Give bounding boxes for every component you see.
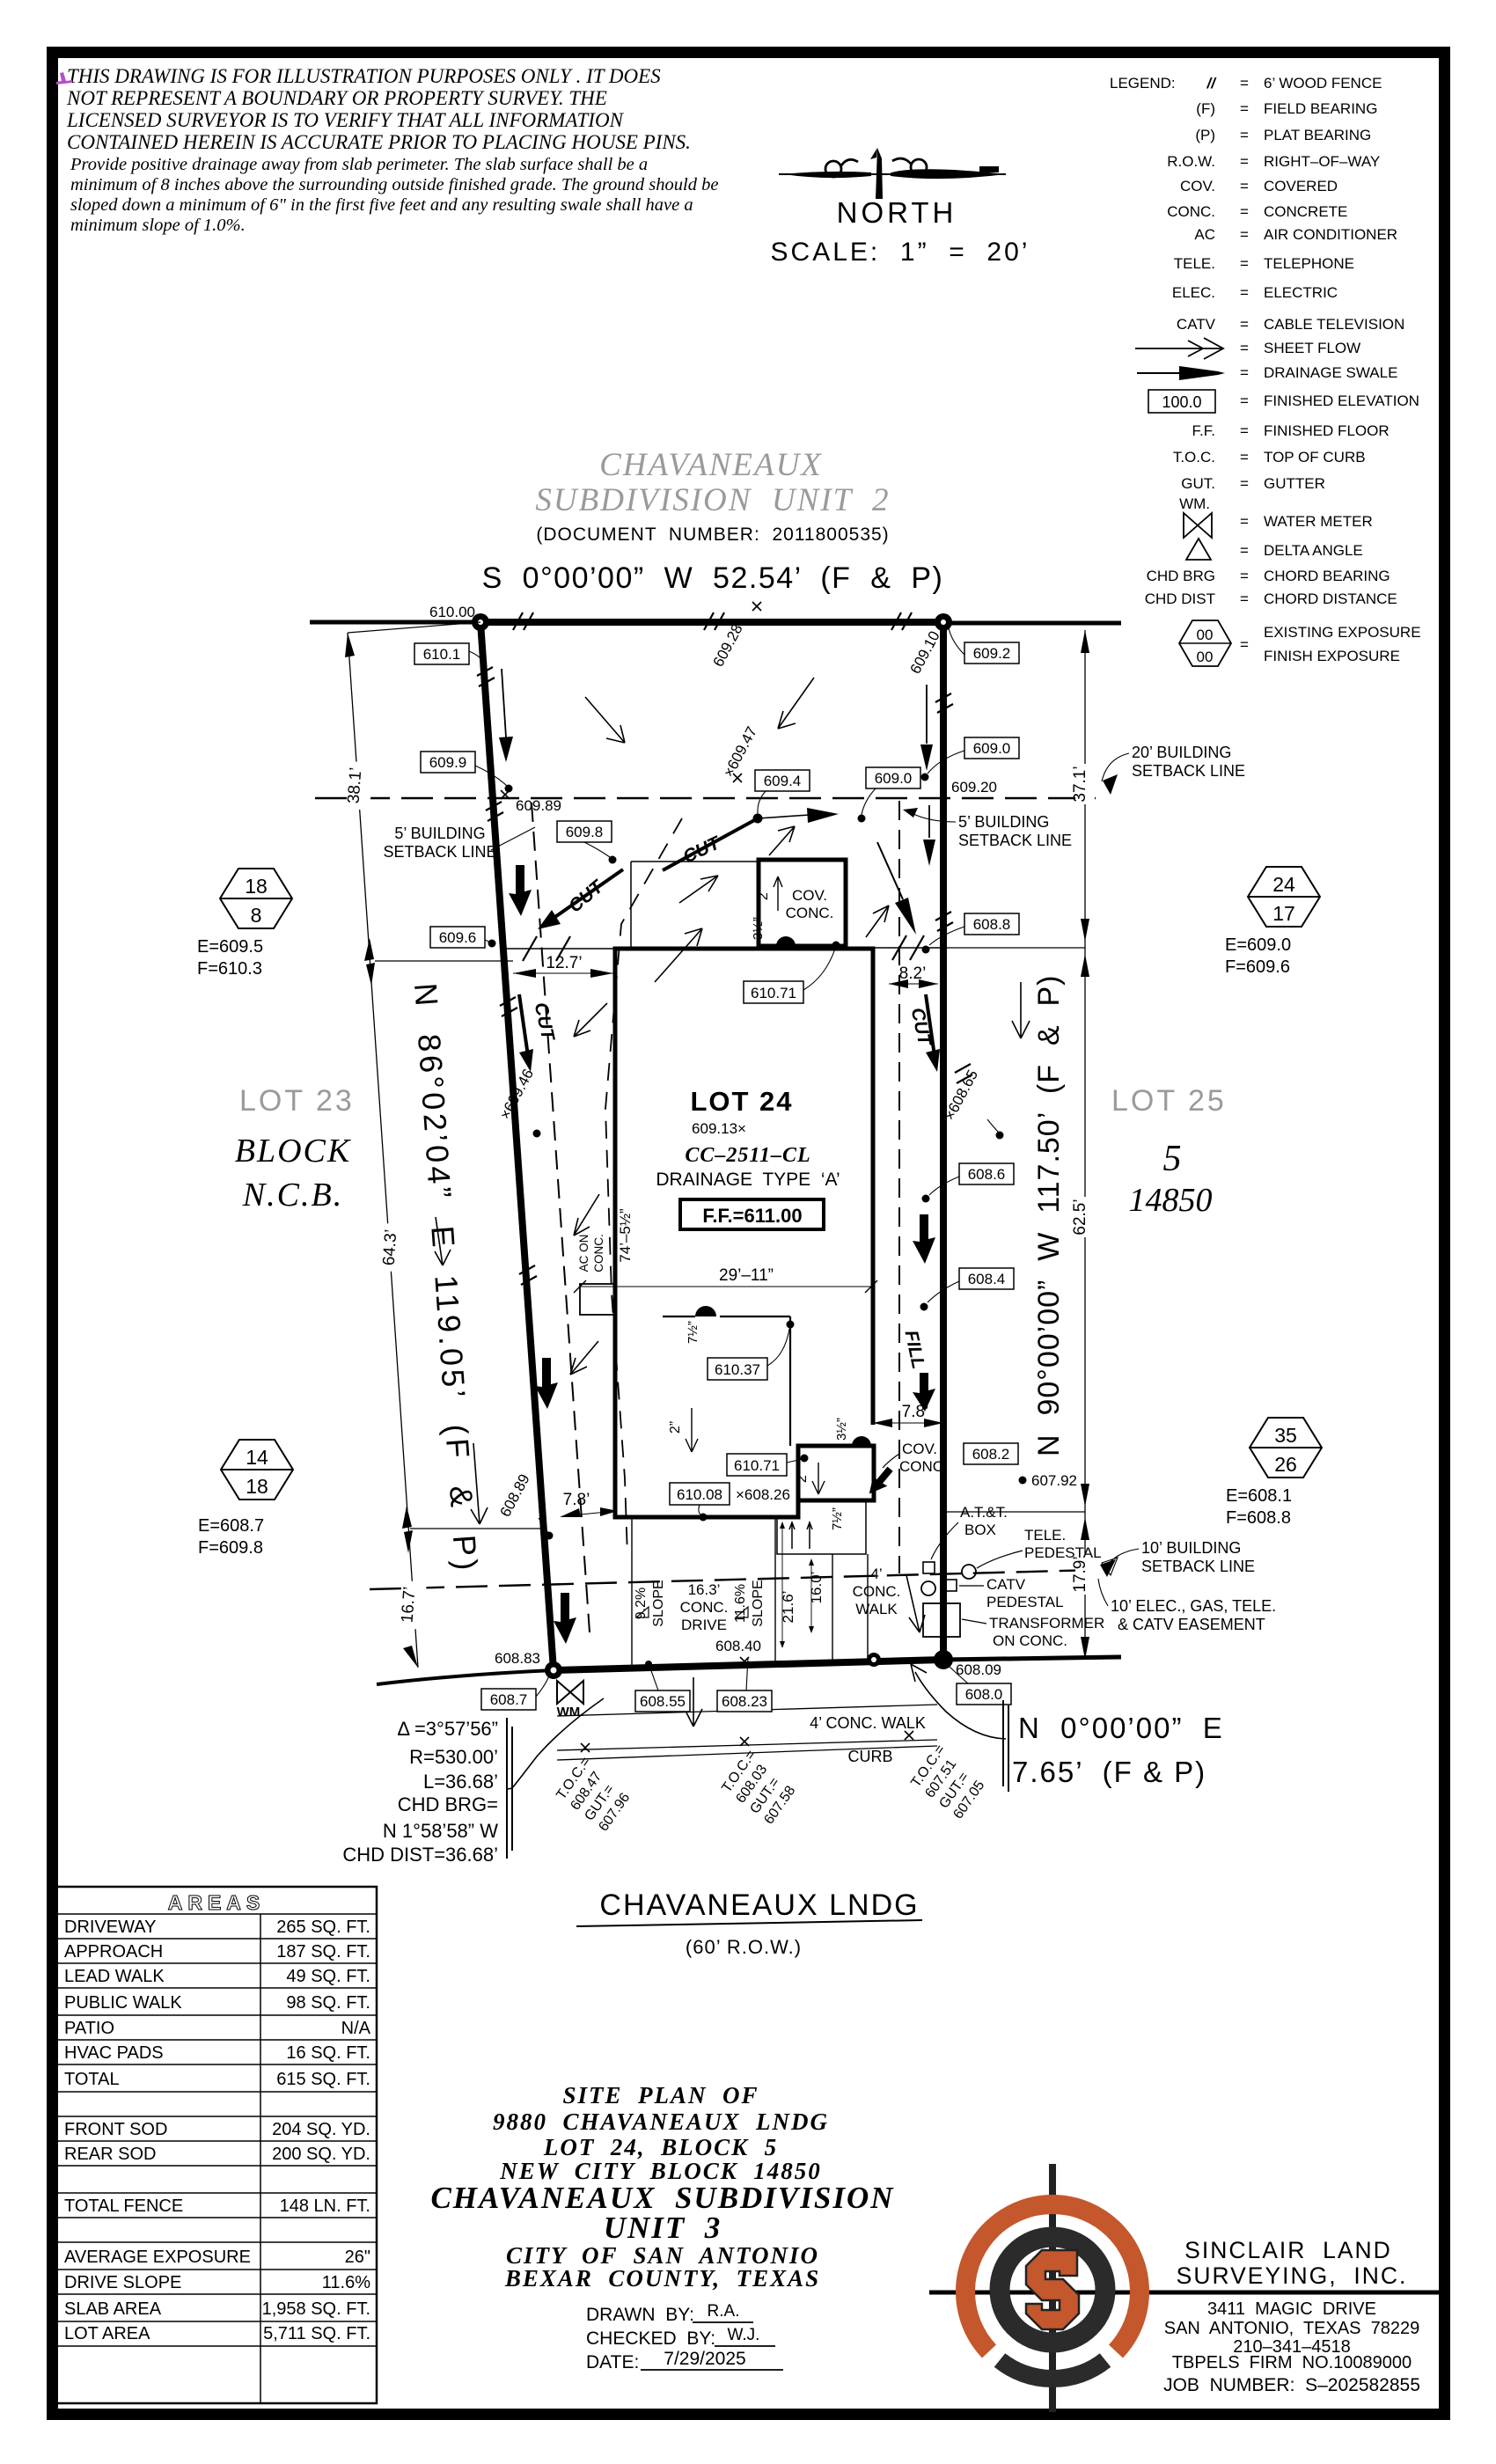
svg-text:148 LN. FT.: 148 LN. FT. <box>280 2196 370 2216</box>
svg-text:F=609.8: F=609.8 <box>198 1538 263 1558</box>
svg-text:4’ CONC. WALK: 4’ CONC. WALK <box>810 1714 926 1732</box>
svg-text:LEGEND:: LEGEND: <box>1110 75 1176 92</box>
svg-text:AIR CONDITIONER: AIR CONDITIONER <box>1264 226 1397 243</box>
svg-text:Δ =3°57’56”: Δ =3°57’56” <box>397 1718 498 1740</box>
svg-text:CHAVANEAUX: CHAVANEAUX <box>599 447 823 483</box>
svg-text:BOX: BOX <box>964 1522 996 1538</box>
svg-text:609.0: 609.0 <box>973 740 1011 757</box>
svg-text:L=36.68’: L=36.68’ <box>423 1771 498 1793</box>
svg-text:SLOPE: SLOPE <box>651 1580 666 1626</box>
svg-text:TELEPHONE: TELEPHONE <box>1264 255 1354 272</box>
svg-text:8.2’: 8.2’ <box>899 964 927 983</box>
svg-text:8: 8 <box>251 904 262 927</box>
svg-text:DATE:: DATE: <box>586 2352 639 2372</box>
svg-text:=: = <box>1240 513 1249 530</box>
svg-text:SLAB AREA: SLAB AREA <box>64 2299 162 2319</box>
svg-text:7/29/2025: 7/29/2025 <box>664 2349 745 2369</box>
svg-text:AREAS: AREAS <box>168 1891 266 1914</box>
svg-text:SETBACK LINE: SETBACK LINE <box>1141 1558 1255 1575</box>
svg-text:SINCLAIR LAND: SINCLAIR LAND <box>1184 2237 1392 2263</box>
svg-text:35: 35 <box>1274 1424 1297 1447</box>
svg-text:17.9’: 17.9’ <box>1071 1556 1089 1592</box>
svg-text:609.0: 609.0 <box>875 770 913 787</box>
svg-text:TOTAL FENCE: TOTAL FENCE <box>64 2196 183 2216</box>
svg-text:(60’ R.O.W.): (60’ R.O.W.) <box>686 1936 802 1958</box>
svg-text:=: = <box>1240 284 1249 301</box>
svg-text:100.0: 100.0 <box>1162 393 1201 411</box>
svg-text:FINISH EXPOSURE: FINISH EXPOSURE <box>1264 648 1400 664</box>
svg-text:LOT 23: LOT 23 <box>239 1084 355 1118</box>
svg-text:N/A: N/A <box>341 2019 371 2038</box>
svg-text:LOT 24, BLOCK 5: LOT 24, BLOCK 5 <box>543 2134 778 2160</box>
svg-text:26: 26 <box>1274 1453 1297 1476</box>
svg-text:CHORD DISTANCE: CHORD DISTANCE <box>1264 590 1397 607</box>
svg-text:00: 00 <box>1197 627 1214 643</box>
svg-text:SURVEYING, INC.: SURVEYING, INC. <box>1177 2262 1408 2289</box>
svg-text:608.4: 608.4 <box>968 1271 1006 1287</box>
svg-text:R=530.00’: R=530.00’ <box>409 1746 498 1768</box>
svg-text:=: = <box>1240 203 1249 220</box>
svg-text:18: 18 <box>246 1475 268 1498</box>
svg-text:F=608.8: F=608.8 <box>1226 1508 1291 1528</box>
svg-text:SUBDIVISION UNIT 2: SUBDIVISION UNIT 2 <box>535 482 890 518</box>
svg-text:CHD BRG: CHD BRG <box>1147 568 1215 584</box>
svg-text:SCALE: 1” = 20’: SCALE: 1” = 20’ <box>771 238 1030 267</box>
svg-text:SAN ANTONIO, TEXAS 78229: SAN ANTONIO, TEXAS 78229 <box>1164 2319 1420 2338</box>
svg-text:609.89: 609.89 <box>516 797 561 814</box>
svg-text:7.8’: 7.8’ <box>563 1491 590 1509</box>
svg-text:N 0°00’00” E: N 0°00’00” E <box>1018 1712 1224 1744</box>
svg-text:24: 24 <box>1272 873 1295 896</box>
svg-text:615 SQ. FT.: 615 SQ. FT. <box>276 2070 370 2089</box>
svg-text:R.A.: R.A. <box>708 2302 740 2321</box>
svg-text:APPROACH: APPROACH <box>64 1942 163 1962</box>
svg-text:607.92: 607.92 <box>1031 1472 1077 1489</box>
svg-text:6’ WOOD FENCE: 6’ WOOD FENCE <box>1264 75 1382 92</box>
svg-text:DRIVE SLOPE: DRIVE SLOPE <box>64 2273 181 2292</box>
svg-text:LOT 24: LOT 24 <box>690 1086 793 1117</box>
svg-text:2”: 2” <box>756 888 771 900</box>
svg-text:AC ON: AC ON <box>577 1235 590 1272</box>
svg-text:608.0: 608.0 <box>965 1686 1003 1703</box>
svg-text:5,711 SQ. FT.: 5,711 SQ. FT. <box>263 2324 370 2343</box>
svg-text:BLOCK: BLOCK <box>235 1133 351 1170</box>
svg-text:CHD DIST: CHD DIST <box>1145 590 1215 607</box>
svg-text:PATIO: PATIO <box>64 2019 114 2038</box>
svg-text:609.20: 609.20 <box>951 779 997 796</box>
svg-text:=: = <box>1240 316 1249 333</box>
svg-text:SHEET FLOW: SHEET FLOW <box>1264 340 1360 356</box>
svg-text:=: = <box>1240 100 1249 117</box>
svg-text:SETBACK LINE: SETBACK LINE <box>383 843 496 861</box>
svg-text:3½”: 3½” <box>751 917 766 940</box>
svg-text:THIS DRAWING IS FOR ILLUSTRATI: THIS DRAWING IS FOR ILLUSTRATION PURPOSE… <box>67 65 661 87</box>
svg-text:610.71: 610.71 <box>751 985 796 1001</box>
svg-text:CHD DIST=36.68’: CHD DIST=36.68’ <box>342 1844 498 1866</box>
svg-text:00: 00 <box>1197 649 1214 665</box>
svg-text:SETBACK LINE: SETBACK LINE <box>1132 762 1245 780</box>
svg-text:187 SQ. FT.: 187 SQ. FT. <box>276 1942 370 1962</box>
svg-text:CHORD BEARING: CHORD BEARING <box>1264 568 1390 584</box>
svg-text:98 SQ. FT.: 98 SQ. FT. <box>286 1993 370 2013</box>
svg-text:610.1: 610.1 <box>423 646 461 663</box>
svg-text:610.37: 610.37 <box>715 1361 760 1378</box>
svg-text:TOP OF CURB: TOP OF CURB <box>1264 449 1366 466</box>
svg-text:AC: AC <box>1194 226 1215 243</box>
svg-text:17: 17 <box>1272 902 1295 925</box>
svg-text:3½”: 3½” <box>834 1418 849 1441</box>
svg-text:F.F.: F.F. <box>1192 422 1215 439</box>
svg-text:609.6: 609.6 <box>439 929 477 946</box>
svg-text:=: = <box>1240 226 1249 243</box>
svg-text:608.7: 608.7 <box>490 1691 528 1708</box>
svg-text:74’–5½”: 74’–5½” <box>617 1208 634 1263</box>
svg-text:=: = <box>1240 475 1249 492</box>
svg-text:N 90°00’00” W 117.50’ (F: N 90°00’00” W 117.50’ (F & P) <box>1032 975 1066 1456</box>
svg-text:609.9: 609.9 <box>429 754 467 771</box>
svg-text:Provide positive drainage away: Provide positive drainage away from slab… <box>70 155 648 174</box>
svg-text:608.23: 608.23 <box>722 1693 767 1710</box>
svg-text:7½”: 7½” <box>686 1321 700 1344</box>
svg-text:12.7’: 12.7’ <box>546 954 582 972</box>
svg-text:F.F.=611.00: F.F.=611.00 <box>702 1205 802 1227</box>
svg-text:609.2: 609.2 <box>973 645 1011 662</box>
svg-text:N.C.B.: N.C.B. <box>242 1177 343 1214</box>
svg-text:ELECTRIC: ELECTRIC <box>1264 284 1338 301</box>
svg-text:FINISHED ELEVATION: FINISHED ELEVATION <box>1264 392 1419 409</box>
svg-text:CATV: CATV <box>1177 316 1216 333</box>
svg-text:608.40: 608.40 <box>715 1638 761 1654</box>
svg-text:5’ BUILDING: 5’ BUILDING <box>394 825 485 842</box>
svg-text:LOT 25: LOT 25 <box>1111 1084 1227 1118</box>
svg-text:=: = <box>1240 422 1249 439</box>
svg-text:=: = <box>1240 364 1249 381</box>
svg-text:4’: 4’ <box>870 1566 882 1582</box>
svg-text:DELTA ANGLE: DELTA ANGLE <box>1264 542 1363 559</box>
svg-text:TELE.: TELE. <box>1174 255 1215 272</box>
svg-text:EXISTING EXPOSURE: EXISTING EXPOSURE <box>1264 624 1421 641</box>
svg-text:=: = <box>1240 542 1249 559</box>
svg-text:(P): (P) <box>1195 127 1215 143</box>
svg-text:37.1’: 37.1’ <box>1071 766 1089 802</box>
svg-text:COVERED: COVERED <box>1264 178 1338 194</box>
svg-text:204 SQ. YD.: 204 SQ. YD. <box>272 2120 370 2139</box>
svg-text:WM.: WM. <box>557 1705 584 1720</box>
svg-text:TRANSFORMER: TRANSFORMER <box>989 1615 1104 1632</box>
svg-text:F=610.3: F=610.3 <box>197 959 262 979</box>
svg-text:E=608.7: E=608.7 <box>198 1516 264 1536</box>
svg-text:9.2%: 9.2% <box>634 1588 649 1619</box>
svg-text:16 SQ. FT.: 16 SQ. FT. <box>286 2043 370 2063</box>
svg-text:E=609.5: E=609.5 <box>197 937 263 957</box>
svg-text:S 0°00’00” W 52.54’ (F &: S 0°00’00” W 52.54’ (F & P) <box>482 561 944 595</box>
svg-text:10’ ELEC., GAS, TELE.: 10’ ELEC., GAS, TELE. <box>1111 1597 1276 1615</box>
svg-text:LICENSED SURVEYOR IS TO VERIFY: LICENSED SURVEYOR IS TO VERIFY THAT ALL … <box>66 109 625 131</box>
svg-text:W.J.: W.J. <box>728 2326 760 2344</box>
svg-text:COV.: COV. <box>902 1441 937 1457</box>
svg-text:2”: 2” <box>795 1470 810 1483</box>
svg-text:HVAC PADS: HVAC PADS <box>64 2043 164 2063</box>
svg-text:(F): (F) <box>1196 100 1215 117</box>
svg-text:=: = <box>1240 255 1249 272</box>
svg-text:CONC.: CONC. <box>899 1458 948 1475</box>
svg-text:UNIT 3: UNIT 3 <box>604 2211 722 2245</box>
svg-text:A.T.&T.: A.T.&T. <box>960 1504 1008 1521</box>
svg-text:GUTTER: GUTTER <box>1264 475 1325 492</box>
svg-text:608.6: 608.6 <box>968 1166 1006 1183</box>
svg-text:=: = <box>1240 636 1249 653</box>
svg-text:10’ BUILDING: 10’ BUILDING <box>1141 1539 1241 1557</box>
svg-text:COV.: COV. <box>1180 178 1215 194</box>
svg-text:RIGHT–OF–WAY: RIGHT–OF–WAY <box>1264 153 1380 170</box>
svg-text:26": 26" <box>345 2248 370 2267</box>
svg-text:7.65’ (F & P): 7.65’ (F & P) <box>1012 1756 1206 1788</box>
svg-text:16.0’: 16.0’ <box>808 1572 825 1604</box>
svg-text:WM.: WM. <box>1179 495 1210 512</box>
svg-text:CONC.: CONC. <box>786 905 834 921</box>
svg-text:SITE PLAN OF: SITE PLAN OF <box>562 2082 759 2108</box>
svg-text:CC–2511–CL: CC–2511–CL <box>685 1144 810 1167</box>
svg-text:E=608.1: E=608.1 <box>1226 1486 1292 1506</box>
svg-text:PLAT BEARING: PLAT BEARING <box>1264 127 1371 143</box>
svg-text:18: 18 <box>245 875 268 898</box>
svg-text:7½”: 7½” <box>830 1507 845 1530</box>
svg-text:TELE.: TELE. <box>1024 1527 1066 1544</box>
svg-text:CONC.: CONC. <box>853 1583 901 1600</box>
svg-text:608.2: 608.2 <box>972 1446 1010 1463</box>
svg-text:62.5’: 62.5’ <box>1071 1199 1089 1235</box>
svg-text:14850: 14850 <box>1129 1182 1213 1219</box>
svg-text:JOB NUMBER: S–202582855: JOB NUMBER: S–202582855 <box>1163 2375 1420 2395</box>
svg-text:GUT.: GUT. <box>1181 475 1215 492</box>
svg-text:5: 5 <box>1163 1139 1182 1179</box>
svg-text:PEDESTAL: PEDESTAL <box>1024 1544 1102 1561</box>
svg-text:16.7’: 16.7’ <box>399 1586 420 1624</box>
svg-text:PEDESTAL: PEDESTAL <box>986 1594 1064 1610</box>
svg-text:COV.: COV. <box>792 887 827 904</box>
svg-text:FIELD BEARING: FIELD BEARING <box>1264 100 1377 117</box>
svg-text:200 SQ. YD.: 200 SQ. YD. <box>272 2145 370 2164</box>
svg-text:=: = <box>1240 590 1249 607</box>
svg-text:BEXAR COUNTY, TEXAS: BEXAR COUNTY, TEXAS <box>504 2265 820 2292</box>
svg-text:=: = <box>1240 392 1249 409</box>
svg-text:610.71: 610.71 <box>734 1457 780 1474</box>
svg-text:609.13×: 609.13× <box>692 1120 746 1137</box>
svg-text:LOT AREA: LOT AREA <box>64 2324 150 2343</box>
svg-text:=: = <box>1240 153 1249 170</box>
svg-text:WATER METER: WATER METER <box>1264 513 1373 530</box>
svg-text:CATV: CATV <box>986 1576 1026 1593</box>
svg-text:REAR SOD: REAR SOD <box>64 2145 156 2164</box>
svg-text:CHD BRG=: CHD BRG= <box>398 1793 498 1815</box>
svg-text:minimum of 8 inches above the: minimum of 8 inches above the surroundin… <box>70 175 718 194</box>
svg-text:F=609.6: F=609.6 <box>1225 957 1290 977</box>
svg-text:FINISHED FLOOR: FINISHED FLOOR <box>1264 422 1390 439</box>
svg-text:CONCRETE: CONCRETE <box>1264 203 1347 220</box>
svg-text:sloped down a minimum of 6" in: sloped down a minimum of 6" in the first… <box>70 195 693 215</box>
svg-text:=: = <box>1240 75 1249 92</box>
svg-text:609.8: 609.8 <box>566 824 604 840</box>
svg-text:DRIVE: DRIVE <box>681 1617 727 1633</box>
svg-text:PUBLIC WALK: PUBLIC WALK <box>64 1993 182 2013</box>
svg-text:CONTAINED HEREIN IS ACCURATE P: CONTAINED HEREIN IS ACCURATE PRIOR TO PL… <box>67 131 691 153</box>
svg-text:SLOPE: SLOPE <box>751 1580 766 1626</box>
svg-text:DRAINAGE SWALE: DRAINAGE SWALE <box>1264 364 1397 381</box>
svg-text:CHECKED BY:: CHECKED BY: <box>586 2328 715 2349</box>
svg-text:DRAWN BY:: DRAWN BY: <box>586 2305 694 2325</box>
svg-text:=: = <box>1240 178 1249 194</box>
svg-text:=: = <box>1240 127 1249 143</box>
svg-text:CONC.: CONC. <box>680 1599 729 1616</box>
svg-text:DRAINAGE TYPE ‘A’: DRAINAGE TYPE ‘A’ <box>656 1170 840 1190</box>
svg-text:CABLE TELEVISION: CABLE TELEVISION <box>1264 316 1404 333</box>
svg-text:608.8: 608.8 <box>973 916 1011 933</box>
svg-text:265 SQ. FT.: 265 SQ. FT. <box>276 1918 370 1937</box>
svg-text:608.83: 608.83 <box>495 1650 540 1667</box>
svg-text:1,958 SQ. FT.: 1,958 SQ. FT. <box>262 2299 370 2319</box>
svg-text:ON CONC.: ON CONC. <box>993 1632 1067 1649</box>
svg-text:2”: 2” <box>668 1421 683 1434</box>
svg-text:×608.26: ×608.26 <box>736 1486 790 1503</box>
svg-text:E=609.0: E=609.0 <box>1225 935 1291 955</box>
svg-text:3411 MAGIC DRIVE: 3411 MAGIC DRIVE <box>1207 2299 1376 2319</box>
svg-text:WALK: WALK <box>855 1601 898 1617</box>
svg-text:16.3’: 16.3’ <box>688 1581 721 1598</box>
svg-text:=: = <box>1240 568 1249 584</box>
svg-text:(DOCUMENT NUMBER: 2011800535: (DOCUMENT NUMBER: 2011800535) <box>536 524 889 545</box>
svg-text:608.09: 608.09 <box>956 1661 1001 1678</box>
svg-text:FRONT SOD: FRONT SOD <box>64 2120 167 2139</box>
svg-text:64.3’: 64.3’ <box>380 1228 401 1266</box>
svg-text:LEAD WALK: LEAD WALK <box>64 1967 165 1986</box>
svg-text:=: = <box>1240 449 1249 466</box>
svg-text:CONC.: CONC. <box>592 1234 605 1272</box>
svg-text:T.O.C.: T.O.C. <box>1173 449 1215 466</box>
svg-text:610.08: 610.08 <box>677 1486 722 1503</box>
svg-text:TBPELS FIRM NO.10089000: TBPELS FIRM NO.10089000 <box>1172 2353 1412 2372</box>
svg-text:608.55: 608.55 <box>640 1693 686 1710</box>
svg-text:38.1’: 38.1’ <box>345 766 366 804</box>
svg-text:20’ BUILDING: 20’ BUILDING <box>1132 744 1231 761</box>
svg-text:SETBACK LINE: SETBACK LINE <box>958 832 1072 849</box>
svg-text:29’–11”: 29’–11” <box>719 1266 774 1285</box>
svg-text:610.00: 610.00 <box>429 604 475 620</box>
svg-text:49 SQ. FT.: 49 SQ. FT. <box>286 1967 370 1986</box>
svg-text:9880 CHAVANEAUX LNDG: 9880 CHAVANEAUX LNDG <box>493 2108 829 2135</box>
svg-text:CHAVANEAUX LNDG: CHAVANEAUX LNDG <box>599 1888 919 1922</box>
svg-text:14: 14 <box>246 1446 268 1469</box>
svg-text:DRIVEWAY: DRIVEWAY <box>64 1918 156 1937</box>
svg-text:minimum slope of 1.0%.: minimum slope of 1.0%. <box>70 216 246 235</box>
svg-text:R.O.W.: R.O.W. <box>1167 153 1215 170</box>
svg-text:ELEC.: ELEC. <box>1172 284 1215 301</box>
svg-text:CURB: CURB <box>847 1748 892 1765</box>
svg-text:11.6%: 11.6% <box>322 2273 370 2292</box>
svg-text:N 1°58’58” W: N 1°58’58” W <box>383 1820 498 1842</box>
svg-text:609.4: 609.4 <box>764 773 802 789</box>
svg-text:AVERAGE EXPOSURE: AVERAGE EXPOSURE <box>64 2248 251 2267</box>
svg-text:5’ BUILDING: 5’ BUILDING <box>958 813 1049 831</box>
svg-text:NOT REPRESENT A BOUNDARY OR PR: NOT REPRESENT A BOUNDARY OR PROPERTY SUR… <box>66 87 607 109</box>
svg-text:CONC.: CONC. <box>1167 203 1215 220</box>
svg-text:& CATV EASEMENT: & CATV EASEMENT <box>1118 1616 1265 1633</box>
svg-text:NORTH: NORTH <box>837 196 957 229</box>
svg-text:=: = <box>1240 340 1249 356</box>
svg-text:TOTAL: TOTAL <box>64 2070 120 2089</box>
